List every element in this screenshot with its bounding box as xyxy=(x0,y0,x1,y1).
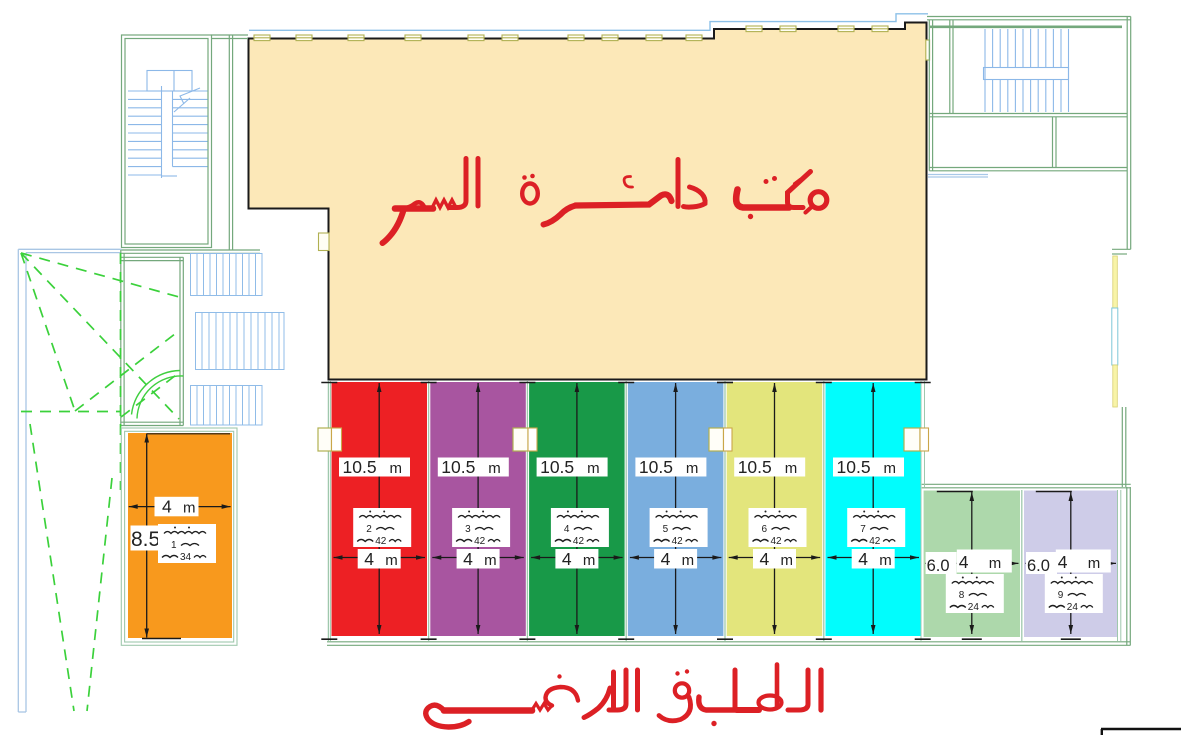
svg-text:m: m xyxy=(989,555,1002,572)
svg-text:2: 2 xyxy=(366,524,372,535)
svg-text:m: m xyxy=(587,460,600,477)
svg-text:6: 6 xyxy=(762,524,768,535)
svg-text:m: m xyxy=(682,552,695,569)
svg-text:4: 4 xyxy=(959,552,969,572)
svg-text:m: m xyxy=(385,552,398,569)
svg-text:m: m xyxy=(484,552,497,569)
svg-text:10.5: 10.5 xyxy=(837,457,871,477)
svg-text:10.5: 10.5 xyxy=(343,457,377,477)
svg-text:34: 34 xyxy=(180,552,192,563)
svg-text:10.5: 10.5 xyxy=(738,457,772,477)
svg-text:4: 4 xyxy=(364,549,374,569)
svg-text:24: 24 xyxy=(968,602,980,613)
svg-text:m: m xyxy=(390,460,403,477)
svg-text:m: m xyxy=(879,552,892,569)
svg-text:10.5: 10.5 xyxy=(441,457,475,477)
svg-text:m: m xyxy=(183,500,196,517)
svg-text:m: m xyxy=(1088,555,1101,572)
svg-text:4: 4 xyxy=(858,549,868,569)
svg-text:4: 4 xyxy=(661,549,671,569)
svg-text:m: m xyxy=(884,460,897,477)
svg-text:8: 8 xyxy=(959,590,965,601)
svg-text:m: m xyxy=(488,460,501,477)
svg-text:m: m xyxy=(583,552,596,569)
svg-text:4: 4 xyxy=(760,549,770,569)
svg-text:42: 42 xyxy=(771,536,783,547)
svg-text:6.0: 6.0 xyxy=(1027,557,1050,575)
svg-text:24: 24 xyxy=(1067,602,1079,613)
svg-text:m: m xyxy=(686,460,699,477)
svg-text:6.0: 6.0 xyxy=(927,557,950,575)
svg-text:42: 42 xyxy=(672,536,684,547)
svg-text:42: 42 xyxy=(573,536,585,547)
svg-text:4: 4 xyxy=(1058,552,1068,572)
svg-text:m: m xyxy=(781,552,794,569)
svg-text:7: 7 xyxy=(860,524,866,535)
svg-text:1: 1 xyxy=(171,540,177,551)
svg-text:8.5: 8.5 xyxy=(131,528,160,551)
svg-text:10.5: 10.5 xyxy=(540,457,574,477)
svg-text:42: 42 xyxy=(869,536,881,547)
svg-text:4: 4 xyxy=(463,549,473,569)
svg-text:42: 42 xyxy=(375,536,387,547)
svg-text:4: 4 xyxy=(162,497,172,517)
svg-text:3: 3 xyxy=(465,524,471,535)
svg-text:4: 4 xyxy=(562,549,572,569)
svg-text:42: 42 xyxy=(474,536,486,547)
svg-text:10.5: 10.5 xyxy=(639,457,673,477)
svg-text:5: 5 xyxy=(663,524,669,535)
svg-text:9: 9 xyxy=(1058,590,1064,601)
svg-text:4: 4 xyxy=(564,524,570,535)
svg-text:m: m xyxy=(785,460,798,477)
